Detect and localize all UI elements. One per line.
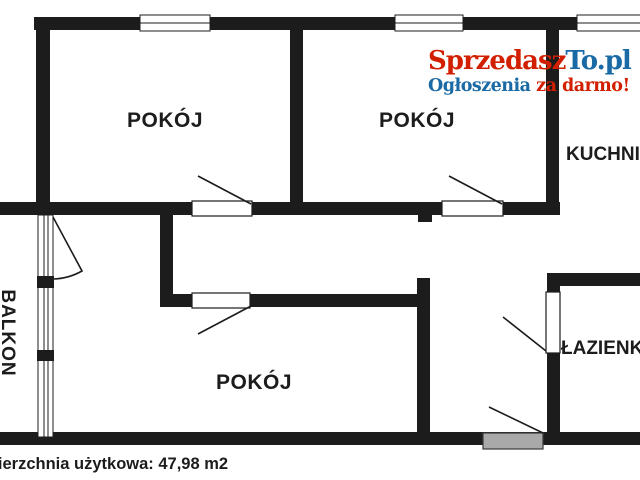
logo-tagline-part1: Ogłoszenia xyxy=(428,76,536,96)
logo-wordmark-part1: Sprzedasz xyxy=(428,46,565,76)
window-icon xyxy=(140,15,210,31)
window-icon xyxy=(395,15,463,31)
wall-room1-room2-divider xyxy=(290,17,303,215)
room-label-pokoj-3: POKÓJ xyxy=(216,371,292,395)
wall-bathroom-top xyxy=(547,273,640,286)
room-label-kuchnia: KUCHNIA xyxy=(566,144,640,166)
room-label-pokoj-1: POKÓJ xyxy=(127,109,203,133)
sprzedaszto-logo: SprzedaszTo.pl Ogłoszenia za darmo! xyxy=(428,48,631,96)
room-label-balkon: BALKON xyxy=(0,289,18,376)
logo-wordmark: SprzedaszTo.pl xyxy=(428,48,631,74)
wall-top xyxy=(34,17,577,30)
door-opening xyxy=(442,176,503,216)
room-label-pokoj-2: POKÓJ xyxy=(379,109,455,133)
floor-plan-page: POKÓJ POKÓJ POKÓJ KUCHNIA ŁAZIENKA BALKO… xyxy=(0,0,640,480)
wall-room3-right xyxy=(417,278,430,445)
wall-room1-left xyxy=(36,17,50,215)
logo-tagline-part2: za darmo! xyxy=(536,76,630,96)
balcony-door-icon xyxy=(37,215,82,437)
wall-hall-left xyxy=(160,215,173,307)
wall-bottom xyxy=(0,432,640,445)
door-opening xyxy=(192,293,251,334)
window-icon xyxy=(577,15,640,31)
wall-stub-hall xyxy=(418,213,432,222)
room-label-lazienka: ŁAZIENKA xyxy=(561,338,640,360)
logo-wordmark-part2: To.pl xyxy=(565,46,630,76)
entrance-door xyxy=(483,407,543,449)
logo-tagline: Ogłoszenia za darmo! xyxy=(428,78,631,96)
usable-area-text: Powierzchnia użytkowa: 47,98 m2 xyxy=(0,455,228,474)
door-opening xyxy=(192,176,252,216)
door-opening xyxy=(503,292,560,353)
doors xyxy=(192,176,560,449)
